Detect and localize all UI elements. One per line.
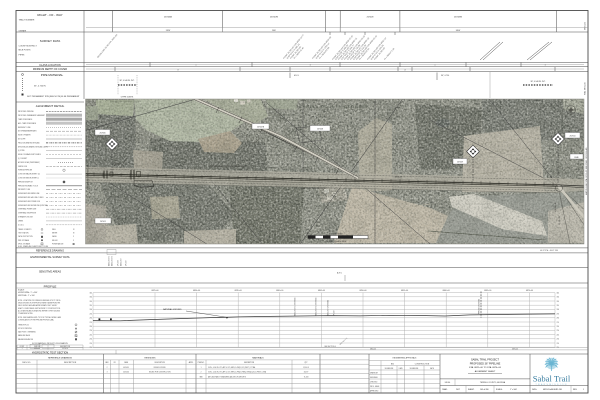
- svg-text:320: 320: [557, 301, 560, 303]
- svg-text:STA. 6821+00 TO STA. 6874+00: STA. 6821+00 TO STA. 6874+00: [469, 366, 502, 369]
- svg-text:310: 310: [89, 305, 92, 307]
- svg-text:STA. 6821+00 TERRELL COUNTY: STA. 6821+00 TERRELL COUNTY: [110, 100, 142, 103]
- svg-text:6850+00: 6850+00: [370, 348, 376, 350]
- svg-text:ALIGNMENT SHEET: ALIGNMENT SHEET: [475, 370, 496, 373]
- svg-text:X: X: [73, 240, 74, 242]
- svg-text:SCALE:: SCALE:: [18, 288, 25, 291]
- svg-text:36", 0.540 IN. W.T.: 36", 0.540 IN. W.T.: [531, 81, 547, 83]
- svg-text:267010: 267010: [570, 136, 576, 138]
- svg-text:REFERENCE DRAWING: REFERENCE DRAWING: [36, 250, 64, 253]
- svg-text:6821-RL-AS-VER1-136: 6821-RL-AS-VER1-136: [543, 388, 562, 391]
- svg-text:270: 270: [89, 322, 92, 324]
- svg-text:CHECKED: CHECKED: [370, 381, 378, 383]
- svg-text:330: 330: [557, 297, 560, 299]
- svg-text:WWCL-027 CROSSING: WWCL-027 CROSSING: [328, 299, 330, 316]
- svg-text:RESIDENCY LINE: RESIDENCY LINE: [18, 127, 30, 129]
- svg-text:ITEM NO.: ITEM NO.: [198, 362, 205, 364]
- svg-text:x: x: [435, 65, 436, 67]
- svg-text:260: 260: [557, 326, 560, 328]
- svg-text:340: 340: [557, 292, 560, 294]
- svg-text:300: 300: [557, 309, 560, 311]
- svg-text:WWCL-026-T2: WWCL-026-T2: [112, 256, 114, 266]
- svg-text:ENVIRONMENTAL SURVEY DATA: ENVIRONMENTAL SURVEY DATA: [30, 256, 69, 259]
- svg-text:220: 220: [89, 343, 92, 345]
- svg-text:A.R.V.: A.R.V.: [114, 164, 120, 167]
- svg-text:CO. RD. 123: CO. RD. 123: [559, 216, 561, 225]
- svg-text:DESIGNED: DESIGNED: [370, 377, 379, 379]
- svg-text:240: 240: [557, 334, 560, 336]
- svg-text:PIPES: PIPES: [19, 55, 26, 57]
- svg-text:(L) CULVERT: (L) CULVERT: [18, 158, 27, 160]
- svg-text:267009: 267009: [457, 162, 463, 164]
- svg-text:PROPOSED 36" PIPELINE: PROPOSED 36" PIPELINE: [470, 362, 501, 365]
- svg-text:YEAR:: YEAR:: [442, 388, 448, 391]
- svg-text:TERRELL COUNTY, GEORGIA: TERRELL COUNTY, GEORGIA: [480, 381, 506, 384]
- svg-text:5,294 LF: 5,294 LF: [303, 367, 309, 369]
- svg-text:36", 0.750: 36", 0.750: [441, 75, 449, 77]
- svg-text:DESCRIPTION: DESCRIPTION: [244, 362, 254, 364]
- svg-text:RIGHT - OF - WAY: RIGHT - OF - WAY: [37, 13, 62, 17]
- svg-text:310: 310: [557, 305, 560, 307]
- svg-text:09/14/15: 09/14/15: [123, 367, 129, 369]
- svg-text:MATCH LINE STA. 6874+00 SEE: MATCH LINE STA. 6874+00 SEE DWG. 6874-RL…: [585, 147, 588, 195]
- svg-text:HORIZONTAL: 1" = 500': HORIZONTAL: 1" = 500': [18, 291, 38, 294]
- svg-text:UPL-027: UPL-027: [334, 310, 336, 316]
- svg-text:ISSUED FOR CONSTRUCTION: ISSUED FOR CONSTRUCTION: [149, 372, 171, 374]
- svg-text:06/10/16: 06/10/16: [123, 372, 129, 374]
- svg-text:71,343: 71,343: [304, 376, 309, 378]
- svg-text:SABAL TRAIL PROJECT: SABAL TRAIL PROJECT: [471, 359, 499, 362]
- svg-text:6865+00: 6865+00: [484, 290, 491, 292]
- svg-text:WELL: WELL: [52, 229, 56, 231]
- svg-text:PIPE MATERIAL: PIPE MATERIAL: [41, 73, 64, 77]
- svg-text:267011: 267011: [100, 221, 106, 223]
- svg-text:MILLER: MILLER: [52, 240, 58, 242]
- svg-text:300: 300: [89, 309, 92, 311]
- svg-text:UNDERGROUND SEWER LINE (FORCED: UNDERGROUND SEWER LINE (FORCED): [18, 205, 48, 207]
- svg-text:TRENCH PLUG: TRENCH PLUG: [18, 324, 30, 326]
- svg-text:267007B: 267007B: [257, 127, 265, 129]
- svg-text:6850+00: 6850+00: [395, 177, 402, 179]
- svg-text:145 of 266: 145 of 266: [480, 389, 489, 391]
- svg-text:NOT PERMANENT R/W (SEE NOTE) E: NOT PERMANENT R/W (SEE NOTE) ELSE PERMAN…: [27, 95, 80, 98]
- svg-text:267007B: 267007B: [270, 17, 279, 19]
- svg-text:6870+00: 6870+00: [526, 290, 533, 292]
- svg-text:267006B: 267006B: [164, 17, 173, 19]
- svg-text:6870+00: 6870+00: [512, 348, 518, 350]
- svg-text:SHEET:: SHEET:: [468, 389, 475, 391]
- svg-text:OTHERWISE NOTED.: OTHERWISE NOTED.: [18, 313, 34, 315]
- svg-text:160 LF: 160 LF: [304, 372, 309, 374]
- svg-text:WWCL-026-T1: WWCL-026-T1: [109, 256, 111, 266]
- svg-text:267009B: 267009B: [454, 17, 463, 19]
- svg-text:METER: METER: [52, 233, 58, 235]
- svg-text:Sabal Trail: Sabal Trail: [533, 374, 571, 384]
- svg-text:WWCL-026-T1 CROSSING: WWCL-026-T1 CROSSING: [295, 297, 297, 316]
- svg-text:SURVEY DATA: SURVEY DATA: [40, 39, 61, 43]
- svg-text:M.L.V.: M.L.V.: [294, 75, 300, 77]
- svg-text:FENCE LINE: FENCE LINE: [18, 166, 27, 168]
- svg-text:REV: REV: [105, 362, 108, 364]
- svg-text:MATCH LINE STA. 6821+00: MATCH LINE STA. 6821+00: [87, 164, 90, 190]
- svg-text:UPL-026: UPL-026: [118, 260, 120, 266]
- svg-text:6825+00: 6825+00: [151, 290, 158, 292]
- svg-text:267008: 267008: [367, 17, 375, 19]
- svg-text:PROPERTY LINE: PROPERTY LINE: [18, 189, 30, 191]
- svg-text:240: 240: [89, 334, 92, 336]
- svg-text:1: 1: [583, 389, 584, 391]
- svg-text:SABAL TRAIL TRANSMISSION: SABAL TRAIL TRANSMISSION: [300, 187, 326, 190]
- svg-text:260: 260: [89, 326, 92, 328]
- svg-text:6835+00: 6835+00: [235, 290, 242, 292]
- svg-text:6850+00: 6850+00: [359, 290, 366, 292]
- svg-text:6840+00: 6840+00: [276, 290, 283, 292]
- svg-text:USGS:: USGS:: [445, 382, 451, 384]
- svg-text:PIPELINE CROSSING: PIPELINE CROSSING: [479, 298, 481, 314]
- svg-text:PROPOSED 36-IN PIPELINE SABAL: PROPOSED 36-IN PIPELINE SABAL TRAIL: [210, 165, 245, 168]
- svg-text:TERRELL COUNTY GEORGIA: TERRELL COUNTY GEORGIA: [296, 105, 368, 109]
- svg-text:(F) SLOPE: (F) SLOPE: [18, 139, 25, 141]
- svg-text:270: 270: [557, 322, 560, 324]
- svg-text:UPL-027: UPL-027: [126, 260, 128, 266]
- svg-text:QTY.: QTY.: [304, 362, 308, 364]
- svg-text:267006: 267006: [100, 133, 106, 135]
- svg-text:CONSTRUCTION: CONSTRUCTION: [415, 363, 430, 365]
- svg-text:WWCL-026-T2 CROSSING: WWCL-026-T2 CROSSING: [316, 297, 318, 316]
- svg-text:6855+00: 6855+00: [401, 290, 408, 292]
- svg-text:BY: BY: [114, 362, 116, 364]
- svg-text:CREEK: CREEK: [18, 220, 23, 222]
- svg-text:PROJ. ENGR.: PROJ. ENGR.: [370, 386, 380, 388]
- svg-text:STA. 6874+00: STA. 6874+00: [584, 81, 587, 95]
- svg-text:280: 280: [89, 318, 92, 320]
- svg-text:6 PIPE JOINTS: 6 PIPE JOINTS: [121, 97, 134, 99]
- svg-text:NATURAL GROUND: NATURAL GROUND: [163, 308, 182, 311]
- svg-text:6845+00: 6845+00: [318, 290, 325, 292]
- svg-text:250: 250: [557, 330, 560, 332]
- svg-text:VERTICAL: 1" = 100': VERTICAL: 1" = 100': [18, 294, 35, 297]
- svg-text:x: x: [196, 65, 197, 67]
- svg-text:2017: 2017: [456, 389, 460, 391]
- svg-text:MILE POSTS: MILE POSTS: [19, 50, 32, 52]
- svg-text:220: 220: [557, 343, 560, 345]
- svg-text:267008: 267008: [317, 129, 323, 131]
- svg-text:CLASS LOCATION: CLASS LOCATION: [39, 64, 61, 67]
- svg-text:0 250 500: 0 250 500 1,000: [330, 234, 343, 236]
- svg-text:PROPOSED PIPELINE: PROPOSED PIPELINE: [18, 111, 34, 113]
- svg-text:CONTOUR MINOR (EVERY 2): CONTOUR MINOR (EVERY 2): [18, 178, 39, 180]
- svg-text:36", 0.540 IN. W.T.: 36", 0.540 IN. W.T.: [120, 80, 136, 82]
- svg-text:6830+00: 6830+00: [193, 290, 200, 292]
- svg-text:WWCL-027: WWCL-027: [121, 258, 123, 266]
- svg-text:TRACT NUMBER: TRACT NUMBER: [19, 19, 35, 22]
- svg-text:SCALE:: SCALE:: [496, 388, 503, 391]
- svg-text:340: 340: [89, 292, 92, 294]
- svg-text:PIPELINE MILEPOST: PIPELINE MILEPOST: [18, 181, 33, 183]
- svg-text:320: 320: [89, 301, 92, 303]
- svg-text:230: 230: [89, 339, 92, 341]
- svg-text:1320': 1320': [166, 30, 171, 32]
- svg-text:UNDERGROUND POWER LINE: UNDERGROUND POWER LINE: [18, 201, 40, 203]
- svg-text:6874+00: 6874+00: [585, 21, 587, 30]
- svg-text:1" = 500': 1" = 500': [510, 389, 518, 391]
- svg-text:36", 0.750 IN: 36", 0.750 IN: [34, 86, 46, 88]
- svg-text:290: 290: [89, 313, 92, 315]
- svg-text:SENSITIVE AREAS: SENSITIVE AREAS: [39, 271, 61, 274]
- svg-text:DWG. NO.: DWG. NO.: [22, 362, 31, 364]
- svg-text:TRANSMISSION: TRANSMISSION: [535, 383, 567, 386]
- svg-text:ENGINEERING APPROVALS: ENGINEERING APPROVALS: [393, 357, 418, 360]
- svg-text:REFERENCE DRAWINGS: REFERENCE DRAWINGS: [48, 356, 72, 359]
- svg-text:280: 280: [557, 318, 560, 320]
- svg-text:290: 290: [557, 313, 560, 315]
- svg-text:210: 210: [89, 347, 92, 349]
- svg-text:DESCRIPTION: DESCRIPTION: [64, 362, 77, 364]
- svg-text:210: 210: [557, 347, 560, 349]
- svg-text:6860+00: 6860+00: [443, 290, 450, 292]
- svg-text:DESCRIPTION: DESCRIPTION: [155, 362, 165, 364]
- svg-text:DWG:: DWG:: [532, 389, 537, 391]
- svg-text:980': 980': [272, 30, 276, 32]
- svg-text:MATERIALS: MATERIALS: [252, 356, 264, 359]
- svg-text:A.R.V.: A.R.V.: [337, 272, 343, 275]
- svg-text:ISSUED FOR BID: ISSUED FOR BID: [154, 367, 167, 369]
- svg-text:FOREIGN PIPELINE: FOREIGN PIPELINE: [18, 170, 32, 172]
- svg-text:REV:: REV:: [573, 389, 578, 391]
- svg-text:(L) POND: (L) POND: [18, 150, 26, 152]
- svg-text:REVISIONS: REVISIONS: [145, 357, 157, 359]
- svg-text:230: 230: [557, 339, 560, 341]
- svg-text:( IN FEET ) 1 inch = 500 ft.: ( IN FEET ) 1 inch = 500 ft.: [325, 240, 347, 243]
- svg-text:U.S.G.S.: U.S.G.S.: [18, 224, 25, 226]
- svg-text:MINIMUM DEPTH OF COVER: MINIMUM DEPTH OF COVER: [33, 68, 67, 71]
- svg-text:250: 250: [89, 330, 92, 332]
- svg-text:COUNTY/DISTRICT: COUNTY/DISTRICT: [19, 45, 38, 47]
- svg-text:330: 330: [89, 297, 92, 299]
- svg-text:ALIGNMENT DETAIL: ALIGNMENT DETAIL: [36, 104, 65, 108]
- svg-text:TREES / FORESTS: TREES / FORESTS: [18, 229, 31, 231]
- svg-text:SEE SECTION 4: SEE SECTION 4: [324, 346, 336, 348]
- svg-text:V: V: [73, 236, 74, 238]
- svg-text:1650': 1650': [456, 30, 461, 32]
